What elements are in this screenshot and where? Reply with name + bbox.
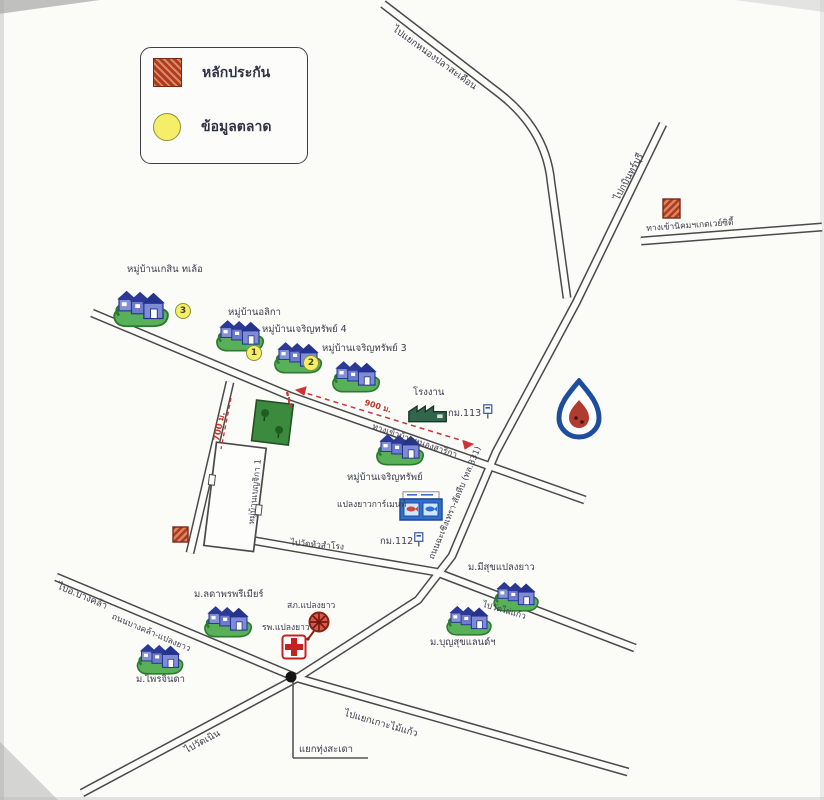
village-houses-icon <box>106 286 176 330</box>
village-label: หมู่บ้านเกสิน ทเล้อ <box>127 264 203 277</box>
collateral-marker-north <box>663 199 680 218</box>
road-label-thung-sadao: แยกทุ่งสะเดา <box>299 744 353 757</box>
market-data-badge: 2 <box>303 355 319 371</box>
school-field <box>252 400 294 445</box>
collateral-legend-label: หลักประกัน <box>202 62 270 84</box>
collateral-legend-icon <box>153 58 182 87</box>
km-112-label: กม.112 <box>380 536 413 549</box>
km-113-label: กม.113 <box>448 408 481 421</box>
village-label: หมู่บ้านเจริญทรัพย์ <box>347 472 423 485</box>
legend: หลักประกัน ข้อมูลตลาด <box>140 47 308 164</box>
hospital-cross-icon <box>281 634 307 660</box>
village-label: ม.ลดาพรพรีเมียร์ <box>194 589 264 602</box>
junction-dot <box>286 672 297 683</box>
ptt-station-icon <box>552 378 606 442</box>
village-label: หมู่บ้านเจริญทรัพย์ 4 <box>262 324 347 337</box>
garment-label: แปลงยาวการ์เมนท์ <box>337 500 406 511</box>
collateral-marker-school <box>173 527 188 542</box>
market-data-legend-icon <box>153 113 181 141</box>
village-houses-icon <box>200 602 256 640</box>
village-label: ม.ไพรจินดา <box>136 674 185 687</box>
village-houses-icon <box>270 338 326 376</box>
market-data-badge: 3 <box>175 303 191 319</box>
village-label: หมู่บ้านเจริญทรัพย์ 3 <box>322 343 407 356</box>
village-label: ม.มีสุขแปลงยาว <box>468 562 535 575</box>
village-label: ม.บุญสุขแลนด์ฯ <box>430 637 496 650</box>
market-data-badge: 1 <box>246 345 262 361</box>
legend-collateral-row: หลักประกัน <box>153 58 307 87</box>
factory-icon <box>407 403 449 424</box>
village-label: หมู่บ้านอลิกา <box>228 307 281 320</box>
factory-label: โรงงาน <box>413 387 444 400</box>
km-sign-icon <box>483 404 493 419</box>
km-sign-icon <box>414 532 424 547</box>
hospital-label: รพ.แปลงยาว <box>262 623 310 634</box>
legend-market-row: ข้อมูลตลาด <box>153 113 307 141</box>
village-houses-icon <box>328 357 384 395</box>
police-station-label: สภ.แปลงยาว <box>287 601 335 612</box>
road-network <box>0 0 824 800</box>
market-data-legend-label: ข้อมูลตลาด <box>201 116 271 138</box>
